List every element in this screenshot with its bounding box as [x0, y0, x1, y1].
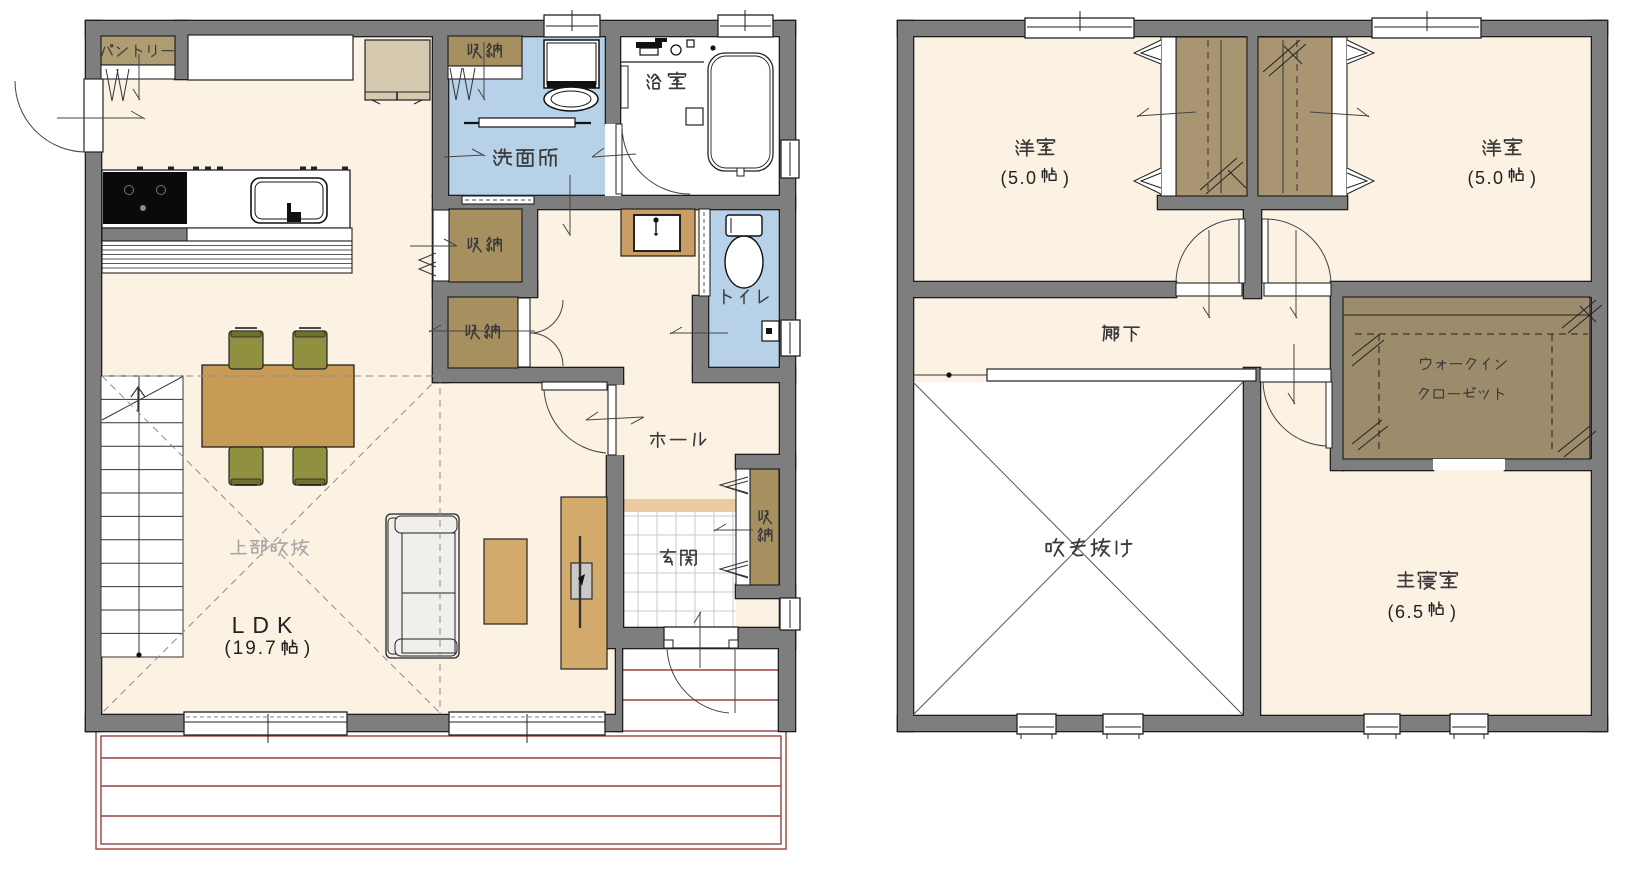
svg-text:): ) — [1063, 168, 1069, 188]
svg-text:(5.0: (5.0 — [1000, 168, 1037, 188]
svg-text:): ) — [1450, 602, 1456, 622]
svg-text:(19.7: (19.7 — [224, 638, 277, 659]
svg-text:(5.0: (5.0 — [1467, 168, 1504, 188]
svg-text:LDK: LDK — [232, 612, 301, 638]
svg-text:): ) — [304, 638, 310, 659]
svg-text:(6.5: (6.5 — [1387, 602, 1424, 622]
svg-text:): ) — [1530, 168, 1536, 188]
